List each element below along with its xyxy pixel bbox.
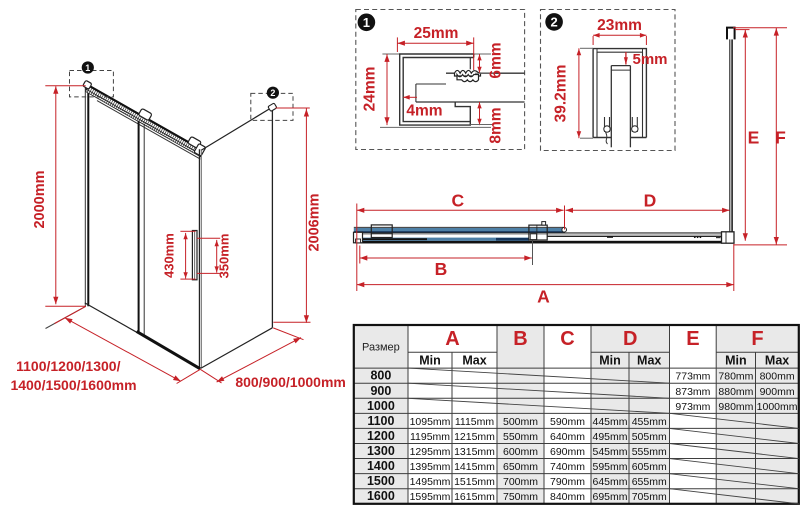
svg-text:650mm: 650mm bbox=[503, 461, 538, 473]
svg-text:1000mm: 1000mm bbox=[757, 401, 798, 413]
svg-text:5mm: 5mm bbox=[633, 51, 668, 68]
svg-text:840mm: 840mm bbox=[550, 491, 585, 503]
svg-text:600mm: 600mm bbox=[503, 446, 538, 458]
svg-text:1295mm: 1295mm bbox=[410, 446, 451, 458]
svg-text:495mm: 495mm bbox=[592, 431, 627, 443]
svg-text:605mm: 605mm bbox=[632, 461, 667, 473]
svg-text:E: E bbox=[748, 128, 760, 148]
svg-text:24mm: 24mm bbox=[362, 67, 379, 112]
svg-text:900mm: 900mm bbox=[760, 386, 795, 398]
svg-text:C: C bbox=[560, 328, 574, 350]
svg-text:Max: Max bbox=[462, 353, 486, 367]
svg-text:505mm: 505mm bbox=[632, 431, 667, 443]
svg-text:900: 900 bbox=[370, 384, 391, 398]
svg-text:23mm: 23mm bbox=[597, 17, 642, 34]
svg-text:1115mm: 1115mm bbox=[455, 416, 495, 428]
svg-text:800mm: 800mm bbox=[760, 371, 795, 383]
svg-text:1515mm: 1515mm bbox=[454, 476, 495, 488]
svg-text:1200: 1200 bbox=[367, 429, 395, 443]
svg-text:980mm: 980mm bbox=[718, 401, 753, 413]
svg-text:A: A bbox=[445, 328, 459, 350]
svg-text:555mm: 555mm bbox=[632, 446, 667, 458]
svg-text:545mm: 545mm bbox=[592, 446, 627, 458]
svg-text:25mm: 25mm bbox=[414, 25, 459, 42]
svg-text:1395mm: 1395mm bbox=[410, 461, 451, 473]
svg-text:Max: Max bbox=[765, 353, 789, 367]
svg-text:1400: 1400 bbox=[367, 459, 395, 473]
svg-text:1215mm: 1215mm bbox=[454, 431, 495, 443]
svg-text:430mm: 430mm bbox=[161, 233, 176, 278]
svg-text:2: 2 bbox=[550, 15, 557, 30]
svg-text:1495mm: 1495mm bbox=[410, 476, 451, 488]
svg-text:500mm: 500mm bbox=[503, 416, 538, 428]
svg-text:1500: 1500 bbox=[367, 474, 395, 488]
svg-text:690mm: 690mm bbox=[550, 446, 585, 458]
svg-text:1095mm: 1095mm bbox=[410, 416, 451, 428]
svg-text:880mm: 880mm bbox=[718, 386, 753, 398]
svg-text:973mm: 973mm bbox=[675, 401, 710, 413]
svg-text:2: 2 bbox=[270, 88, 275, 98]
svg-text:1195mm: 1195mm bbox=[410, 431, 450, 443]
svg-text:1000: 1000 bbox=[367, 399, 395, 413]
svg-text:655mm: 655mm bbox=[632, 476, 667, 488]
svg-text:1400/1500/1600mm: 1400/1500/1600mm bbox=[10, 377, 136, 393]
svg-text:Min: Min bbox=[599, 353, 621, 367]
svg-text:790mm: 790mm bbox=[550, 476, 585, 488]
svg-text:4mm: 4mm bbox=[406, 103, 442, 120]
svg-text:740mm: 740mm bbox=[550, 461, 585, 473]
svg-text:D: D bbox=[623, 328, 637, 350]
svg-text:39.2mm: 39.2mm bbox=[553, 65, 570, 123]
svg-text:800: 800 bbox=[370, 369, 391, 383]
svg-text:873mm: 873mm bbox=[675, 386, 710, 398]
svg-text:445mm: 445mm bbox=[592, 416, 627, 428]
svg-text:F: F bbox=[751, 328, 763, 350]
svg-text:700mm: 700mm bbox=[503, 476, 538, 488]
svg-text:8mm: 8mm bbox=[488, 107, 505, 143]
svg-text:A: A bbox=[537, 287, 550, 307]
svg-text:350mm: 350mm bbox=[217, 234, 232, 279]
svg-text:595mm: 595mm bbox=[592, 461, 627, 473]
svg-text:695mm: 695mm bbox=[592, 491, 627, 503]
svg-text:B: B bbox=[435, 259, 448, 279]
svg-text:B: B bbox=[513, 328, 527, 350]
svg-text:773mm: 773mm bbox=[675, 371, 710, 383]
svg-text:6mm: 6mm bbox=[488, 42, 505, 78]
svg-text:1600: 1600 bbox=[367, 489, 395, 503]
svg-text:Размер: Размер bbox=[362, 342, 400, 354]
svg-text:1: 1 bbox=[85, 63, 90, 73]
svg-text:1315mm: 1315mm bbox=[454, 446, 495, 458]
svg-text:705mm: 705mm bbox=[632, 491, 667, 503]
svg-text:E: E bbox=[686, 328, 699, 350]
svg-text:F: F bbox=[775, 128, 786, 148]
svg-text:2006mm: 2006mm bbox=[306, 193, 322, 251]
svg-text:800/900/1000mm: 800/900/1000mm bbox=[235, 374, 346, 390]
svg-text:750mm: 750mm bbox=[503, 491, 538, 503]
svg-text:1100/1200/1300/: 1100/1200/1300/ bbox=[16, 358, 120, 374]
svg-text:780mm: 780mm bbox=[718, 371, 753, 383]
svg-text:645mm: 645mm bbox=[592, 476, 627, 488]
svg-text:1300: 1300 bbox=[367, 444, 395, 458]
svg-text:Max: Max bbox=[637, 353, 661, 367]
svg-text:D: D bbox=[644, 191, 657, 211]
svg-text:1615mm: 1615mm bbox=[454, 491, 495, 503]
svg-text:1415mm: 1415mm bbox=[454, 461, 495, 473]
svg-text:640mm: 640mm bbox=[550, 431, 585, 443]
svg-text:1100: 1100 bbox=[367, 414, 394, 428]
svg-text:Min: Min bbox=[725, 353, 747, 367]
svg-text:2000mm: 2000mm bbox=[32, 170, 48, 228]
svg-text:1: 1 bbox=[363, 15, 370, 30]
svg-text:1595mm: 1595mm bbox=[410, 491, 451, 503]
svg-text:455mm: 455mm bbox=[632, 416, 667, 428]
svg-text:550mm: 550mm bbox=[503, 431, 538, 443]
svg-text:C: C bbox=[451, 191, 464, 211]
svg-text:590mm: 590mm bbox=[550, 416, 585, 428]
svg-text:Min: Min bbox=[419, 353, 441, 367]
